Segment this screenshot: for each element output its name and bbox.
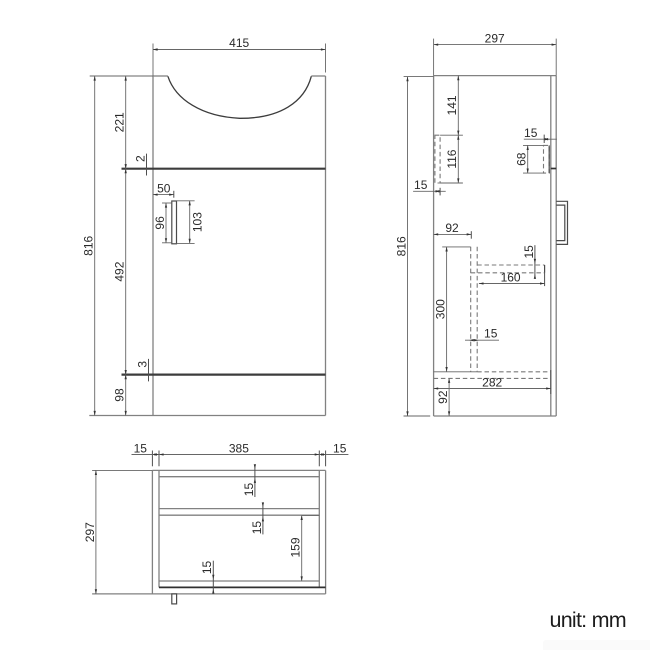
svg-text:415: 415: [229, 36, 249, 50]
svg-text:50: 50: [157, 181, 171, 195]
svg-text:15: 15: [242, 483, 256, 497]
svg-text:297: 297: [83, 522, 97, 542]
svg-text:15: 15: [250, 521, 264, 535]
svg-text:160: 160: [501, 270, 521, 284]
svg-text:15: 15: [414, 178, 428, 192]
svg-text:15: 15: [200, 561, 214, 575]
svg-text:15: 15: [522, 245, 536, 259]
svg-text:2: 2: [133, 155, 147, 162]
svg-text:92: 92: [436, 390, 450, 404]
svg-text:92: 92: [445, 221, 459, 235]
svg-text:15: 15: [134, 441, 148, 455]
svg-text:159: 159: [289, 537, 303, 557]
svg-text:3: 3: [135, 361, 149, 368]
svg-text:15: 15: [333, 441, 347, 455]
svg-text:68: 68: [515, 152, 529, 166]
svg-text:816: 816: [82, 235, 96, 255]
svg-text:221: 221: [113, 112, 127, 132]
svg-text:15: 15: [484, 327, 498, 341]
svg-text:15: 15: [524, 126, 538, 140]
svg-text:98: 98: [113, 388, 127, 402]
svg-text:297: 297: [485, 31, 505, 45]
svg-text:96: 96: [153, 216, 167, 230]
svg-text:300: 300: [434, 299, 448, 319]
svg-text:816: 816: [394, 236, 408, 256]
svg-text:385: 385: [229, 441, 249, 455]
svg-text:141: 141: [445, 95, 459, 115]
svg-text:103: 103: [191, 212, 205, 232]
svg-text:282: 282: [482, 375, 502, 389]
svg-text:116: 116: [445, 149, 459, 168]
svg-text:492: 492: [113, 261, 127, 281]
